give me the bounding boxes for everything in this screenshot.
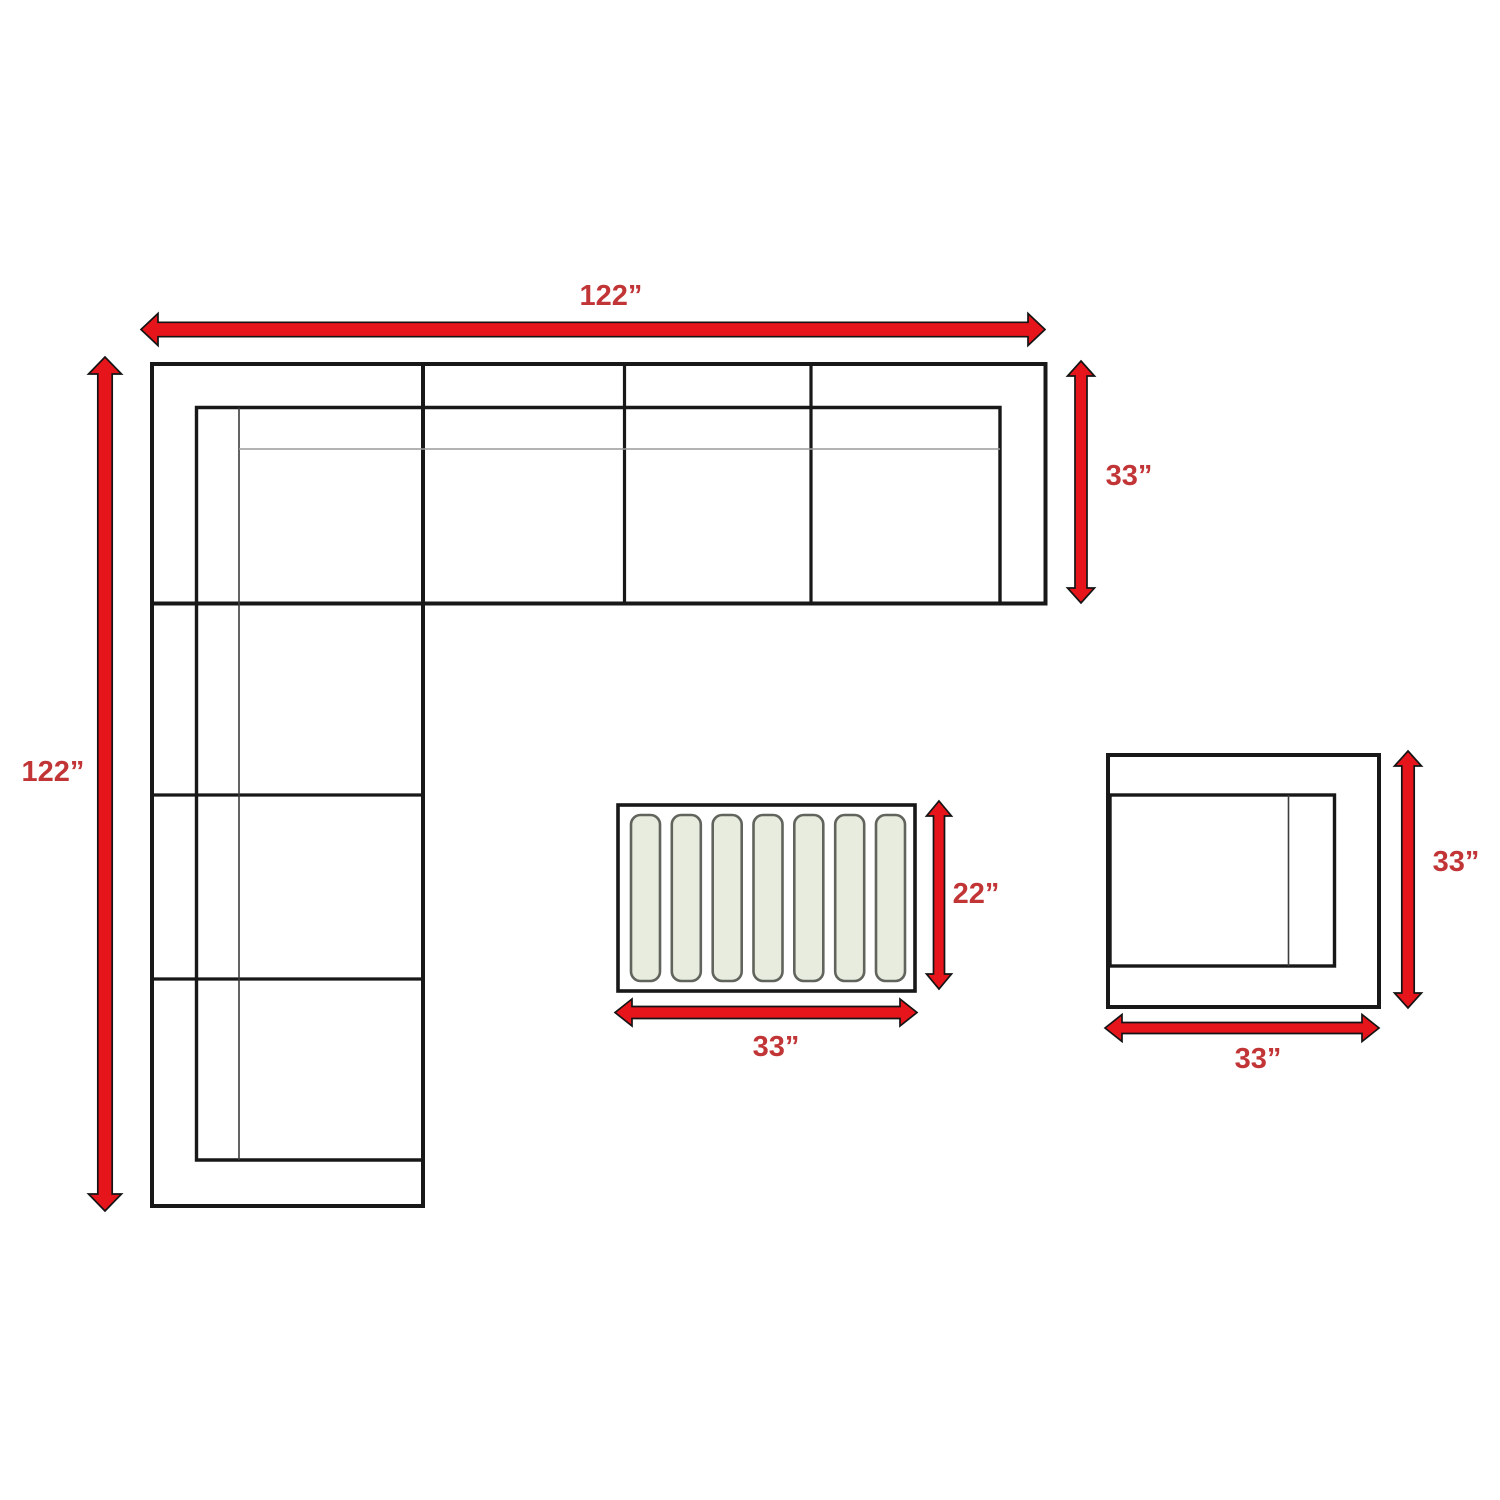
svg-text:33”: 33” bbox=[753, 1031, 800, 1063]
svg-text:122”: 122” bbox=[22, 756, 85, 788]
svg-text:33”: 33” bbox=[1106, 460, 1153, 492]
svg-text:122”: 122” bbox=[580, 280, 643, 312]
svg-text:22”: 22” bbox=[953, 878, 1000, 910]
svg-text:33”: 33” bbox=[1433, 846, 1480, 878]
svg-text:33”: 33” bbox=[1235, 1043, 1282, 1075]
